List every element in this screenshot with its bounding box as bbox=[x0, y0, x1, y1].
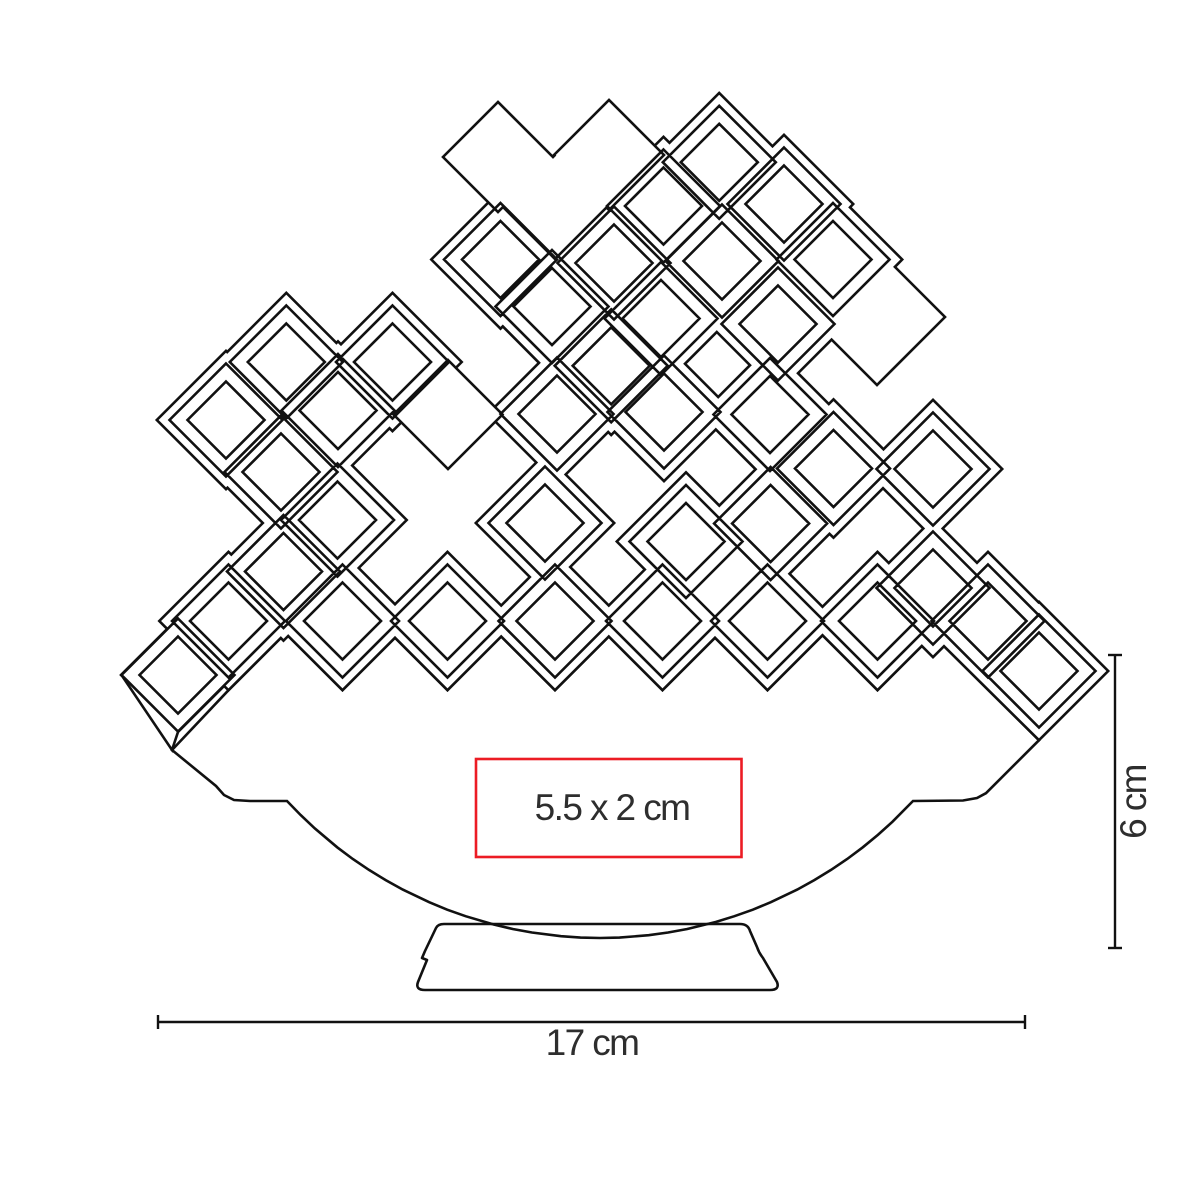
svg-text:5.5 x 2 cm: 5.5 x 2 cm bbox=[535, 787, 690, 828]
svg-text:6 cm: 6 cm bbox=[1113, 765, 1154, 839]
svg-text:17 cm: 17 cm bbox=[546, 1022, 639, 1063]
